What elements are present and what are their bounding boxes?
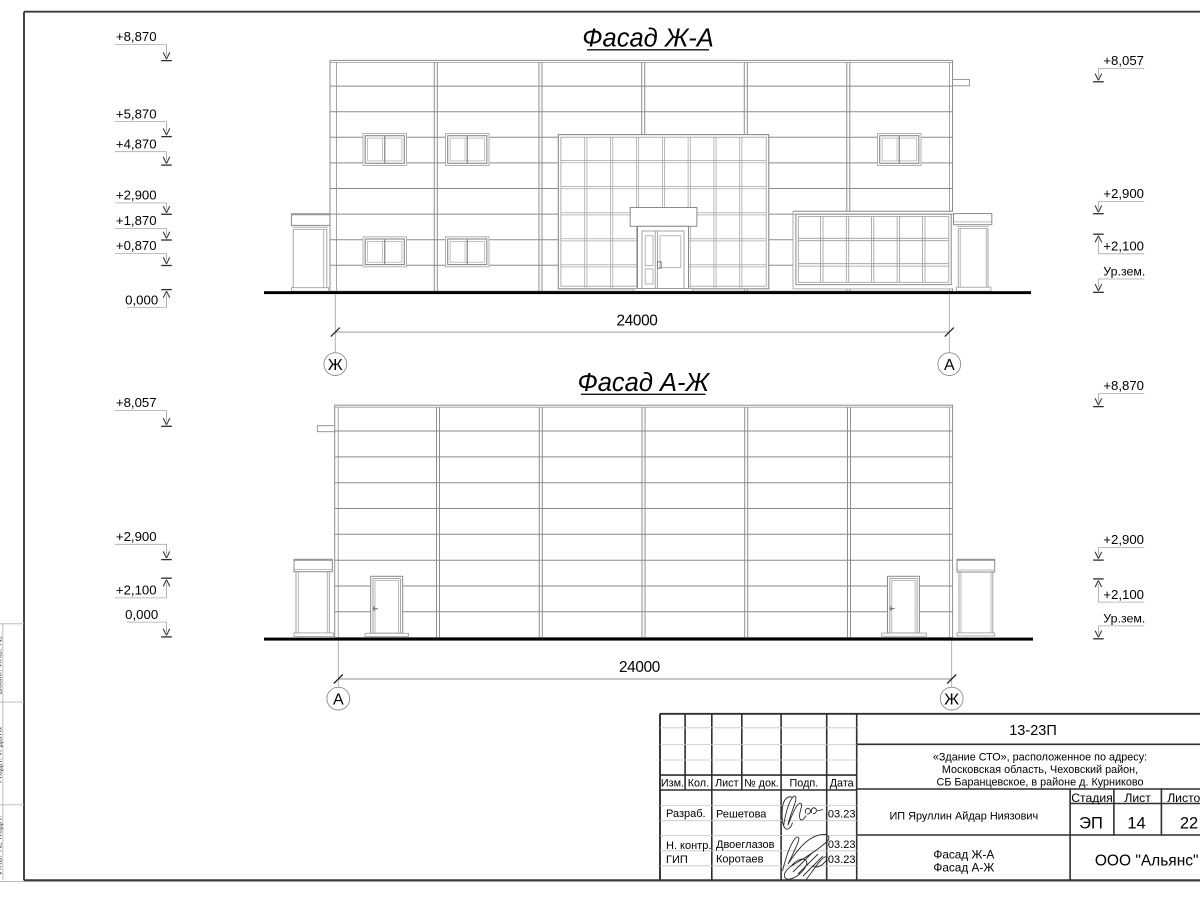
svg-text:Лист: Лист: [715, 778, 739, 790]
svg-text:Дата: Дата: [830, 778, 854, 790]
svg-text:«Здание СТО», расположенное по: «Здание СТО», расположенное по адресу:: [933, 752, 1147, 764]
svg-text:03.23: 03.23: [828, 809, 856, 821]
svg-text:Ж: Ж: [944, 692, 959, 709]
svg-text:0,000: 0,000: [125, 607, 158, 622]
svg-text:Кол.: Кол.: [688, 778, 709, 790]
svg-text:+5,870: +5,870: [116, 106, 157, 121]
svg-text:СБ Баранцевское, в районе д. К: СБ Баранцевское, в районе д. Курниково: [937, 776, 1144, 788]
svg-text:Ж: Ж: [328, 357, 343, 374]
svg-text:+0,870: +0,870: [116, 238, 157, 253]
svg-text:03.23: 03.23: [828, 854, 856, 866]
svg-text:+2,100: +2,100: [1103, 587, 1144, 602]
svg-text:Фасад Ж-А: Фасад Ж-А: [933, 847, 994, 861]
svg-text:13-23П: 13-23П: [1009, 723, 1057, 739]
svg-text:0,000: 0,000: [125, 292, 158, 307]
svg-text:24000: 24000: [616, 313, 657, 330]
svg-text:Разраб.: Разраб.: [666, 808, 706, 820]
svg-text:22: 22: [1180, 815, 1198, 833]
svg-text:Коротаев: Коротаев: [716, 853, 764, 865]
svg-text:А: А: [944, 357, 955, 374]
svg-text:Инв. № подл.: Инв. № подл.: [0, 816, 5, 875]
svg-text:Фасад А-Ж: Фасад А-Ж: [933, 860, 994, 874]
svg-text:Лист: Лист: [1124, 791, 1151, 805]
svg-text:Листов: Листов: [1167, 791, 1200, 805]
svg-text:ГИП: ГИП: [666, 854, 688, 866]
svg-text:+2,100: +2,100: [116, 583, 157, 598]
svg-text:+2,100: +2,100: [1103, 239, 1144, 254]
svg-text:Фасад А-Ж: Фасад А-Ж: [577, 369, 710, 397]
svg-text:Взам. инв. №: Взам. инв. №: [0, 636, 5, 695]
svg-text:А: А: [333, 692, 344, 709]
svg-text:+8,870: +8,870: [116, 29, 157, 44]
svg-text:+2,900: +2,900: [116, 529, 157, 544]
svg-text:+1,870: +1,870: [116, 213, 157, 228]
svg-text:Двоеглазов: Двоеглазов: [716, 839, 775, 851]
svg-text:+8,057: +8,057: [116, 395, 157, 410]
svg-text:+8,057: +8,057: [1103, 53, 1144, 68]
svg-text:Ур.зем.: Ур.зем.: [1103, 612, 1145, 626]
svg-text:+2,900: +2,900: [1103, 532, 1144, 547]
svg-text:№ док.: № док.: [744, 778, 779, 790]
svg-text:ООО "Альянс": ООО "Альянс": [1095, 852, 1199, 869]
svg-text:24000: 24000: [619, 659, 660, 676]
svg-text:ЭП: ЭП: [1079, 815, 1103, 833]
svg-text:Стадия: Стадия: [1071, 791, 1113, 805]
svg-text:+2,900: +2,900: [116, 188, 157, 203]
svg-text:Ур.зем.: Ур.зем.: [1103, 265, 1145, 279]
svg-text:Н. контр.: Н. контр.: [666, 840, 711, 852]
svg-text:+2,900: +2,900: [1103, 186, 1144, 201]
svg-text:Подп.: Подп.: [790, 778, 819, 790]
svg-text:+4,870: +4,870: [116, 136, 157, 151]
svg-text:ИП Яруллин Айдар Ниязович: ИП Яруллин Айдар Ниязович: [889, 810, 1038, 822]
svg-text:03.23: 03.23: [828, 839, 856, 851]
svg-text:Подп. и дата: Подп. и дата: [0, 726, 5, 783]
svg-text:Изм.: Изм.: [661, 778, 684, 790]
svg-text:Фасад Ж-А: Фасад Ж-А: [582, 25, 713, 53]
svg-text:+8,870: +8,870: [1103, 378, 1144, 393]
svg-text:14: 14: [1127, 815, 1145, 833]
svg-text:Московская область, Чеховский: Московская область, Чеховский район,: [942, 764, 1138, 776]
svg-text:Решетова: Решетова: [716, 809, 767, 821]
